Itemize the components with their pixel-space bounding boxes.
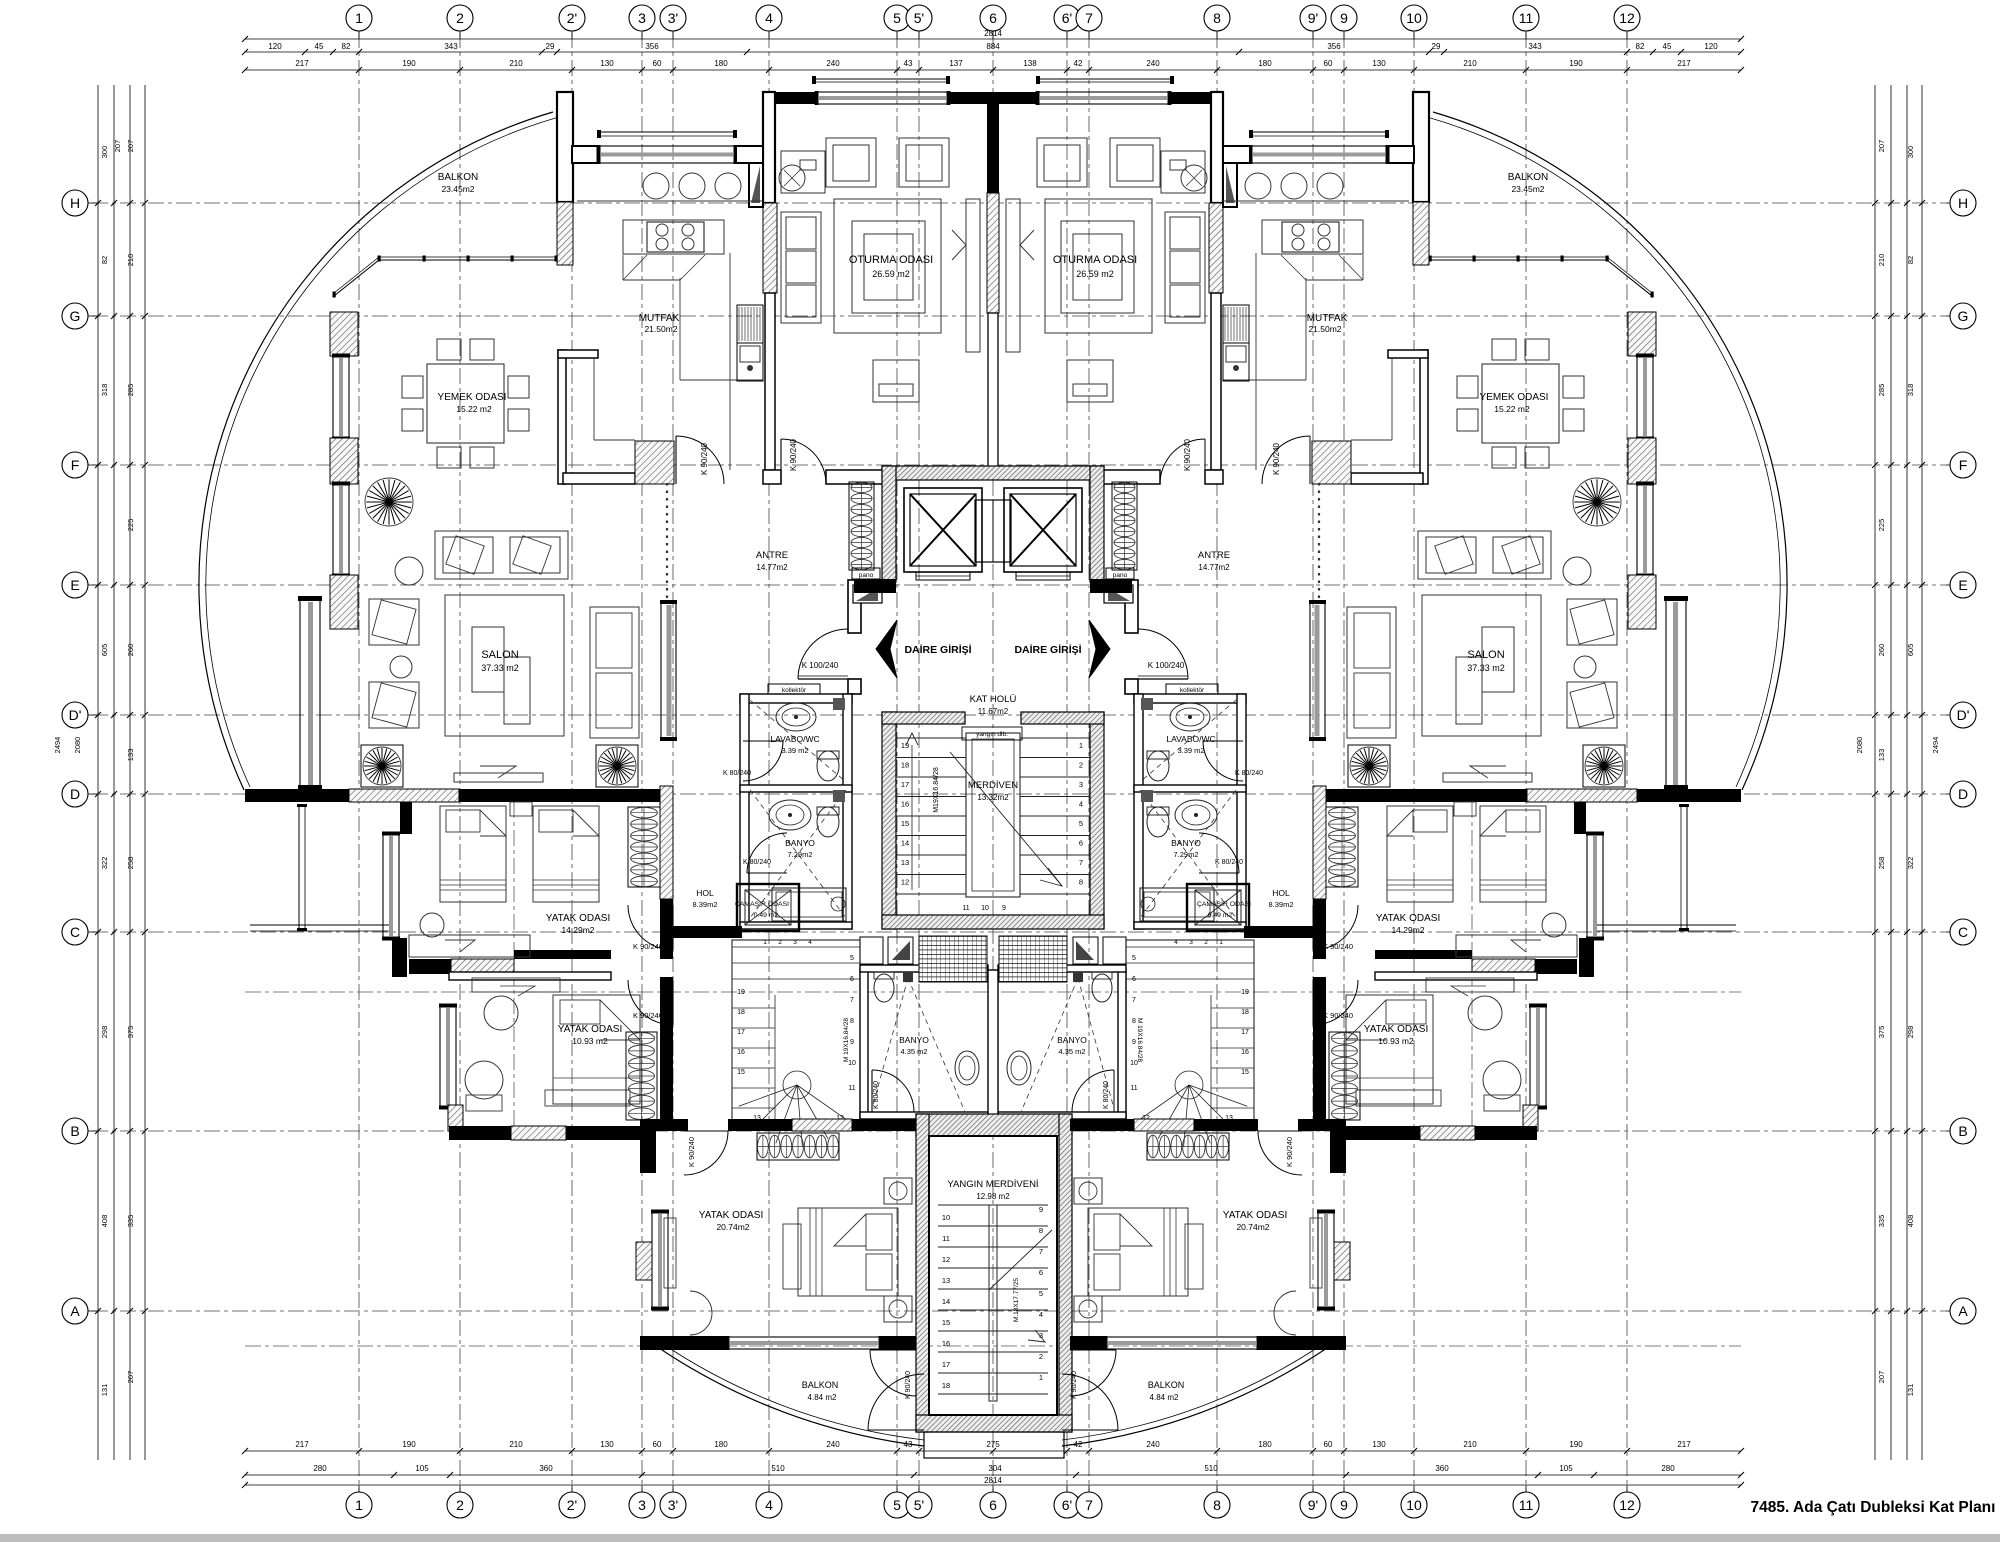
svg-text:13: 13 <box>942 1276 950 1285</box>
svg-text:7: 7 <box>1132 997 1136 1004</box>
svg-text:12: 12 <box>901 878 909 887</box>
svg-text:12.98 m2: 12.98 m2 <box>976 1192 1010 1201</box>
svg-text:0.49 m2: 0.49 m2 <box>1208 912 1233 919</box>
svg-text:YATAK ODASI: YATAK ODASI <box>558 1024 622 1035</box>
svg-text:K 80/240: K 80/240 <box>1103 1081 1110 1109</box>
svg-text:21.50m2: 21.50m2 <box>1308 324 1341 334</box>
svg-text:9: 9 <box>850 1039 854 1046</box>
svg-text:LAVABO/WC: LAVABO/WC <box>770 734 819 744</box>
svg-text:322: 322 <box>100 857 109 870</box>
svg-text:210: 210 <box>1877 254 1886 267</box>
svg-text:285: 285 <box>126 384 135 397</box>
svg-text:23.45m2: 23.45m2 <box>1511 184 1544 194</box>
svg-text:207: 207 <box>1877 140 1886 153</box>
svg-text:BALKON: BALKON <box>802 1380 839 1390</box>
svg-text:A: A <box>70 1303 80 1319</box>
svg-text:11: 11 <box>942 1234 950 1243</box>
svg-text:2494: 2494 <box>53 737 62 754</box>
svg-text:B: B <box>70 1123 79 1139</box>
svg-text:60: 60 <box>653 1440 662 1449</box>
svg-text:BANYO: BANYO <box>1171 838 1201 848</box>
svg-text:yangın dlb.: yangın dlb. <box>976 731 1008 738</box>
svg-text:6: 6 <box>1039 1268 1043 1277</box>
svg-text:3: 3 <box>1079 780 1083 789</box>
svg-text:K 90/240: K 90/240 <box>687 1137 696 1167</box>
svg-text:207: 207 <box>113 140 122 153</box>
svg-text:2494: 2494 <box>1931 737 1940 754</box>
svg-text:HOL: HOL <box>696 888 714 898</box>
svg-text:240: 240 <box>1146 1440 1160 1449</box>
svg-text:BANYO: BANYO <box>899 1035 929 1045</box>
svg-text:K 80/240: K 80/240 <box>743 859 771 866</box>
svg-text:D: D <box>1958 786 1968 802</box>
svg-text:285: 285 <box>1877 384 1886 397</box>
svg-text:4.35 m2: 4.35 m2 <box>900 1047 927 1056</box>
svg-text:207: 207 <box>126 1371 135 1384</box>
svg-text:YATAK ODASI: YATAK ODASI <box>1376 913 1440 924</box>
svg-text:K 90/240: K 90/240 <box>1285 1137 1294 1167</box>
svg-text:BALKON: BALKON <box>1508 172 1549 183</box>
svg-text:K 90/240: K 90/240 <box>1071 1371 1078 1399</box>
svg-text:130: 130 <box>600 59 614 68</box>
svg-text:322: 322 <box>1906 857 1915 870</box>
svg-text:B: B <box>1958 1123 1967 1139</box>
svg-text:4: 4 <box>765 1497 773 1513</box>
svg-text:6: 6 <box>1079 839 1083 848</box>
svg-text:YATAK ODASI: YATAK ODASI <box>1223 1210 1287 1221</box>
svg-text:82: 82 <box>342 42 351 51</box>
svg-text:343: 343 <box>1528 42 1542 51</box>
svg-text:225: 225 <box>1877 519 1886 532</box>
svg-text:4: 4 <box>1174 939 1178 946</box>
svg-text:1: 1 <box>763 939 767 946</box>
svg-text:K 80/240: K 80/240 <box>1235 770 1263 777</box>
svg-text:G: G <box>70 308 81 324</box>
svg-text:7: 7 <box>1085 1497 1093 1513</box>
svg-text:180: 180 <box>714 1440 728 1449</box>
svg-text:8.39m2: 8.39m2 <box>692 900 717 909</box>
svg-text:14: 14 <box>942 1297 950 1306</box>
svg-text:SALON: SALON <box>1467 649 1504 661</box>
svg-text:9: 9 <box>1002 905 1006 912</box>
svg-text:4: 4 <box>765 10 773 26</box>
svg-text:YATAK ODASI: YATAK ODASI <box>1364 1024 1428 1035</box>
svg-text:356: 356 <box>1327 42 1341 51</box>
svg-text:DAİRE GİRİŞİ: DAİRE GİRİŞİ <box>904 643 971 656</box>
svg-text:1: 1 <box>355 10 363 26</box>
svg-text:1: 1 <box>355 1497 363 1513</box>
svg-text:298: 298 <box>100 1026 109 1039</box>
svg-text:K 90/240: K 90/240 <box>633 1011 663 1020</box>
svg-text:3: 3 <box>638 10 646 26</box>
svg-text:BANYO: BANYO <box>1057 1035 1087 1045</box>
svg-text:210: 210 <box>509 59 523 68</box>
svg-text:375: 375 <box>126 1026 135 1039</box>
svg-text:7485. Ada Çatı Dubleksi Kat Pl: 7485. Ada Çatı Dubleksi Kat Planı <box>1751 1499 1996 1516</box>
svg-text:260: 260 <box>1877 644 1886 657</box>
svg-text:180: 180 <box>1258 59 1272 68</box>
svg-text:18: 18 <box>737 1009 745 1016</box>
svg-text:131: 131 <box>100 1384 109 1397</box>
svg-text:5': 5' <box>914 1497 924 1513</box>
svg-text:YATAK ODASI: YATAK ODASI <box>546 913 610 924</box>
svg-text:K 90/240: K 90/240 <box>700 442 709 475</box>
svg-text:2': 2' <box>567 10 577 26</box>
svg-text:408: 408 <box>100 1215 109 1228</box>
svg-text:304: 304 <box>988 1464 1002 1473</box>
svg-text:17: 17 <box>1241 1029 1249 1036</box>
svg-text:217: 217 <box>1677 59 1691 68</box>
svg-text:14.77m2: 14.77m2 <box>756 563 788 572</box>
svg-text:9': 9' <box>1308 10 1318 26</box>
svg-text:7.29m2: 7.29m2 <box>1173 850 1198 859</box>
svg-text:6': 6' <box>1062 10 1072 26</box>
svg-text:130: 130 <box>1372 1440 1386 1449</box>
svg-text:12: 12 <box>942 1255 950 1264</box>
svg-text:16: 16 <box>901 800 909 809</box>
svg-text:kollektör: kollektör <box>782 687 807 694</box>
svg-text:3: 3 <box>1189 939 1193 946</box>
svg-text:ÇAMAŞIR ODASI: ÇAMAŞIR ODASI <box>735 901 789 908</box>
svg-text:26.59 m2: 26.59 m2 <box>872 269 910 279</box>
svg-text:120: 120 <box>1704 42 1718 51</box>
svg-text:4: 4 <box>808 939 812 946</box>
svg-text:510: 510 <box>771 1464 785 1473</box>
svg-text:2: 2 <box>1204 939 1208 946</box>
svg-text:8.39m2: 8.39m2 <box>1268 900 1293 909</box>
svg-text:300: 300 <box>1906 146 1915 159</box>
svg-text:8: 8 <box>850 1018 854 1025</box>
svg-text:3': 3' <box>668 10 678 26</box>
svg-text:7.29m2: 7.29m2 <box>787 850 812 859</box>
svg-text:0.49 m2: 0.49 m2 <box>754 912 779 919</box>
svg-text:5: 5 <box>1132 955 1136 962</box>
svg-text:5: 5 <box>893 10 901 26</box>
svg-text:4: 4 <box>1079 800 1083 809</box>
svg-text:16: 16 <box>1241 1049 1249 1056</box>
svg-text:605: 605 <box>100 644 109 657</box>
svg-text:298: 298 <box>1906 1026 1915 1039</box>
svg-text:133: 133 <box>1877 749 1886 762</box>
svg-text:12: 12 <box>1619 10 1635 26</box>
svg-text:13.32m2: 13.32m2 <box>977 793 1009 802</box>
svg-text:G: G <box>1958 308 1969 324</box>
svg-text:2': 2' <box>567 1497 577 1513</box>
svg-text:60: 60 <box>1324 59 1333 68</box>
svg-text:C: C <box>70 924 80 940</box>
svg-text:kollektör: kollektör <box>1180 687 1205 694</box>
svg-text:510: 510 <box>1204 1464 1218 1473</box>
svg-text:9: 9 <box>1132 1039 1136 1046</box>
svg-text:5: 5 <box>850 955 854 962</box>
svg-text:1: 1 <box>1219 939 1223 946</box>
svg-text:10.93 m2: 10.93 m2 <box>1378 1036 1414 1046</box>
svg-text:217: 217 <box>1677 1440 1691 1449</box>
svg-text:4.35 m2: 4.35 m2 <box>1058 1047 1085 1056</box>
svg-text:D: D <box>70 786 80 802</box>
svg-text:360: 360 <box>539 1464 553 1473</box>
svg-text:26.59 m2: 26.59 m2 <box>1076 269 1114 279</box>
svg-text:K 90/240: K 90/240 <box>1323 1011 1353 1020</box>
svg-text:131: 131 <box>1906 1384 1915 1397</box>
svg-text:MUTFAK: MUTFAK <box>1307 313 1348 324</box>
svg-text:8: 8 <box>1039 1226 1043 1235</box>
svg-text:280: 280 <box>313 1464 327 1473</box>
svg-text:1: 1 <box>1079 741 1083 750</box>
svg-text:K 90/240: K 90/240 <box>905 1371 912 1399</box>
svg-text:207: 207 <box>1877 1371 1886 1384</box>
svg-text:A: A <box>1958 1303 1968 1319</box>
svg-text:14.29m2: 14.29m2 <box>1391 925 1424 935</box>
svg-text:12: 12 <box>1619 1497 1635 1513</box>
svg-text:360: 360 <box>1435 1464 1449 1473</box>
svg-text:82: 82 <box>100 256 109 264</box>
svg-text:F: F <box>71 457 80 473</box>
svg-text:3.39 m2: 3.39 m2 <box>781 746 808 755</box>
svg-text:210: 210 <box>1463 1440 1477 1449</box>
svg-text:D': D' <box>69 707 82 723</box>
svg-text:207: 207 <box>126 140 135 153</box>
svg-text:YEMEK ODASI: YEMEK ODASI <box>1480 392 1549 403</box>
svg-text:HOL: HOL <box>1272 888 1290 898</box>
svg-text:YEMEK ODASI: YEMEK ODASI <box>438 392 507 403</box>
svg-text:120: 120 <box>268 42 282 51</box>
svg-text:180: 180 <box>714 59 728 68</box>
svg-text:17: 17 <box>942 1360 950 1369</box>
svg-text:335: 335 <box>1877 1215 1886 1228</box>
svg-text:19: 19 <box>1241 989 1249 996</box>
svg-text:H: H <box>70 195 80 211</box>
svg-text:258: 258 <box>126 857 135 870</box>
svg-text:9: 9 <box>1340 10 1348 26</box>
svg-text:190: 190 <box>1569 1440 1583 1449</box>
svg-text:18: 18 <box>901 761 909 770</box>
svg-text:6: 6 <box>989 1497 997 1513</box>
svg-text:105: 105 <box>1559 1464 1573 1473</box>
svg-text:18: 18 <box>1241 1009 1249 1016</box>
svg-text:10.93 m2: 10.93 m2 <box>572 1036 608 1046</box>
svg-text:1: 1 <box>1039 1373 1043 1382</box>
svg-text:2: 2 <box>1039 1352 1043 1361</box>
svg-text:8: 8 <box>1213 1497 1221 1513</box>
svg-text:42: 42 <box>1074 59 1083 68</box>
svg-text:M19X16.84/28: M19X16.84/28 <box>933 767 940 813</box>
svg-text:2080: 2080 <box>1855 737 1864 754</box>
svg-text:9': 9' <box>1308 1497 1318 1513</box>
svg-text:210: 210 <box>1463 59 1477 68</box>
svg-text:K 90/240: K 90/240 <box>633 942 663 951</box>
svg-text:23.45m2: 23.45m2 <box>441 184 474 194</box>
svg-text:7: 7 <box>850 997 854 1004</box>
svg-text:2: 2 <box>778 939 782 946</box>
svg-text:10: 10 <box>1406 10 1422 26</box>
svg-text:210: 210 <box>126 254 135 267</box>
svg-text:190: 190 <box>402 1440 416 1449</box>
svg-text:18: 18 <box>942 1381 950 1390</box>
svg-text:4.84 m2: 4.84 m2 <box>1150 1393 1179 1402</box>
svg-text:ANTRE: ANTRE <box>1198 550 1230 561</box>
svg-text:K 80/240: K 80/240 <box>723 770 751 777</box>
svg-text:9: 9 <box>1039 1205 1043 1214</box>
svg-text:10: 10 <box>1406 1497 1422 1513</box>
svg-text:60: 60 <box>1324 1440 1333 1449</box>
svg-text:15: 15 <box>1241 1069 1249 1076</box>
svg-text:pano: pano <box>859 572 874 579</box>
svg-text:408: 408 <box>1906 1215 1915 1228</box>
svg-text:MERDİVEN: MERDİVEN <box>968 780 1018 791</box>
svg-text:19: 19 <box>901 741 909 750</box>
svg-text:7: 7 <box>1039 1247 1043 1256</box>
svg-text:15.22 m2: 15.22 m2 <box>456 404 492 414</box>
svg-text:275: 275 <box>986 1440 1000 1449</box>
svg-text:240: 240 <box>826 59 840 68</box>
svg-text:15: 15 <box>901 819 909 828</box>
svg-text:130: 130 <box>1372 59 1386 68</box>
svg-text:43: 43 <box>904 59 913 68</box>
svg-text:138: 138 <box>1023 59 1037 68</box>
svg-text:240: 240 <box>1146 59 1160 68</box>
svg-text:2: 2 <box>456 1497 464 1513</box>
svg-text:K 90/240: K 90/240 <box>1272 442 1281 475</box>
svg-text:210: 210 <box>509 1440 523 1449</box>
svg-text:OTURMA ODASI: OTURMA ODASI <box>1053 254 1137 266</box>
svg-text:K 80/240: K 80/240 <box>873 1081 880 1109</box>
svg-text:20.74m2: 20.74m2 <box>1236 1222 1269 1232</box>
svg-text:2: 2 <box>1079 761 1083 770</box>
svg-text:D': D' <box>1957 707 1970 723</box>
svg-text:15.22 m2: 15.22 m2 <box>1494 404 1530 414</box>
svg-text:60: 60 <box>653 59 662 68</box>
svg-text:82: 82 <box>1636 42 1645 51</box>
svg-text:14: 14 <box>901 839 909 848</box>
svg-text:7: 7 <box>1085 10 1093 26</box>
svg-text:2: 2 <box>456 10 464 26</box>
svg-text:6: 6 <box>1132 976 1136 983</box>
svg-text:E: E <box>1958 577 1967 593</box>
svg-text:K 100/240: K 100/240 <box>1148 661 1185 670</box>
svg-text:105: 105 <box>415 1464 429 1473</box>
svg-text:KAT HOLÜ: KAT HOLÜ <box>970 694 1017 705</box>
svg-text:3.39 m2: 3.39 m2 <box>1177 746 1204 755</box>
svg-text:17: 17 <box>737 1029 745 1036</box>
svg-text:2080: 2080 <box>73 737 82 754</box>
svg-text:9: 9 <box>1340 1497 1348 1513</box>
svg-text:K 100/240: K 100/240 <box>802 661 839 670</box>
svg-text:11: 11 <box>962 905 969 912</box>
svg-text:F: F <box>1959 457 1968 473</box>
svg-text:H: H <box>1958 195 1968 211</box>
svg-text:137: 137 <box>949 59 963 68</box>
svg-text:16: 16 <box>942 1339 950 1348</box>
svg-text:280: 280 <box>1661 1464 1675 1473</box>
svg-text:37.33 m2: 37.33 m2 <box>481 663 519 673</box>
svg-text:2814: 2814 <box>984 1476 1002 1485</box>
svg-text:45: 45 <box>1663 42 1672 51</box>
svg-text:318: 318 <box>1906 384 1915 397</box>
svg-text:180: 180 <box>1258 1440 1272 1449</box>
svg-text:3: 3 <box>793 939 797 946</box>
svg-text:37.33 m2: 37.33 m2 <box>1467 663 1505 673</box>
svg-text:217: 217 <box>295 1440 309 1449</box>
svg-text:29: 29 <box>1432 42 1441 51</box>
svg-text:300: 300 <box>100 146 109 159</box>
svg-text:7: 7 <box>1079 858 1083 867</box>
svg-text:K 90/240: K 90/240 <box>789 438 798 471</box>
svg-text:21.50m2: 21.50m2 <box>644 324 677 334</box>
svg-text:LAVABO/WC: LAVABO/WC <box>1166 734 1215 744</box>
svg-text:4.84 m2: 4.84 m2 <box>808 1393 837 1402</box>
svg-text:133: 133 <box>126 749 135 762</box>
svg-text:OTURMA ODASI: OTURMA ODASI <box>849 254 933 266</box>
svg-text:K 90/240: K 90/240 <box>1183 438 1192 471</box>
svg-text:190: 190 <box>1569 59 1583 68</box>
svg-text:11: 11 <box>1130 1085 1137 1092</box>
svg-text:45: 45 <box>315 42 324 51</box>
svg-text:15: 15 <box>737 1069 745 1076</box>
svg-text:884: 884 <box>986 42 1000 51</box>
svg-text:13: 13 <box>901 858 909 867</box>
svg-text:8: 8 <box>1213 10 1221 26</box>
svg-text:14.29m2: 14.29m2 <box>561 925 594 935</box>
svg-text:16: 16 <box>737 1049 745 1056</box>
svg-text:11: 11 <box>1519 10 1534 26</box>
svg-text:BALKON: BALKON <box>1148 1380 1185 1390</box>
svg-text:29: 29 <box>546 42 555 51</box>
svg-text:4: 4 <box>1039 1310 1043 1319</box>
svg-text:260: 260 <box>126 644 135 657</box>
svg-text:5: 5 <box>893 1497 901 1513</box>
svg-text:605: 605 <box>1906 644 1915 657</box>
svg-text:ANTRE: ANTRE <box>756 550 788 561</box>
svg-text:5': 5' <box>914 10 924 26</box>
svg-text:SALON: SALON <box>481 649 518 661</box>
svg-text:356: 356 <box>645 42 659 51</box>
svg-text:MUTFAK: MUTFAK <box>639 313 680 324</box>
svg-text:5: 5 <box>1079 819 1083 828</box>
svg-text:15: 15 <box>942 1318 950 1327</box>
svg-text:M 19X16.84/28: M 19X16.84/28 <box>1136 1018 1143 1062</box>
svg-text:6: 6 <box>850 976 854 983</box>
svg-text:8: 8 <box>1079 878 1083 887</box>
svg-text:pano: pano <box>1113 572 1128 579</box>
svg-text:11: 11 <box>1519 1497 1534 1513</box>
svg-text:5: 5 <box>1039 1289 1043 1298</box>
svg-text:19: 19 <box>737 989 745 996</box>
svg-text:130: 130 <box>600 1440 614 1449</box>
svg-text:M.18X17.77/25: M.18X17.77/25 <box>1013 1278 1020 1322</box>
svg-text:BANYO: BANYO <box>785 838 815 848</box>
svg-text:190: 190 <box>402 59 416 68</box>
svg-text:3': 3' <box>668 1497 678 1513</box>
svg-text:318: 318 <box>100 384 109 397</box>
svg-text:BALKON: BALKON <box>438 172 479 183</box>
svg-text:258: 258 <box>1877 857 1886 870</box>
svg-text:240: 240 <box>826 1440 840 1449</box>
svg-text:ÇAMAŞIR ODASI: ÇAMAŞIR ODASI <box>1197 901 1251 908</box>
svg-text:14.77m2: 14.77m2 <box>1198 563 1230 572</box>
svg-text:343: 343 <box>444 42 458 51</box>
svg-text:335: 335 <box>126 1215 135 1228</box>
svg-text:6': 6' <box>1062 1497 1072 1513</box>
svg-text:225: 225 <box>126 519 135 532</box>
svg-text:YANGIN MERDİVENİ: YANGIN MERDİVENİ <box>947 1179 1038 1190</box>
svg-text:K 90/240: K 90/240 <box>1323 942 1353 951</box>
svg-text:82: 82 <box>1906 256 1915 264</box>
svg-text:17: 17 <box>901 780 909 789</box>
svg-text:E: E <box>70 577 79 593</box>
svg-text:DAİRE GİRİŞİ: DAİRE GİRİŞİ <box>1014 643 1081 656</box>
svg-text:11.67m2: 11.67m2 <box>978 707 1009 716</box>
